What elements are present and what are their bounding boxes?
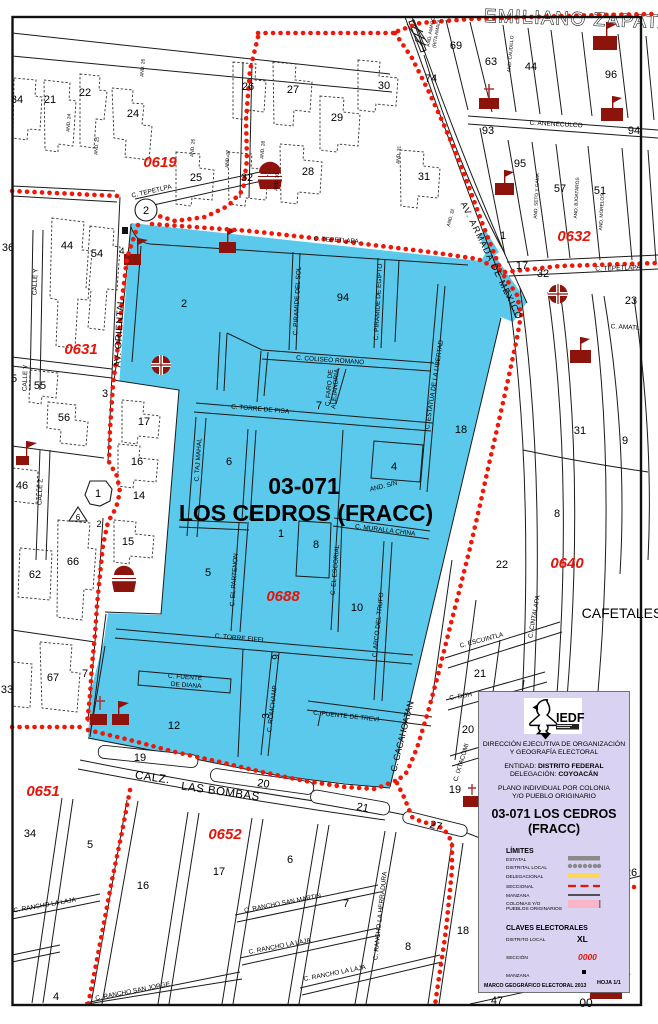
svg-text:44: 44: [525, 61, 537, 73]
svg-text:0640: 0640: [550, 555, 584, 572]
svg-text:46: 46: [16, 480, 28, 492]
svg-text:2: 2: [181, 298, 187, 310]
svg-text:22: 22: [496, 559, 508, 571]
svg-text:0631: 0631: [64, 341, 97, 358]
svg-text:34: 34: [24, 828, 36, 840]
svg-text:Y GEOGRAFÍA ELECTORAL: Y GEOGRAFÍA ELECTORAL: [510, 747, 599, 756]
svg-text:6: 6: [287, 854, 293, 866]
svg-text:44: 44: [61, 240, 73, 252]
svg-text:SECCIÓN: SECCIÓN: [506, 954, 528, 961]
svg-text:51: 51: [594, 185, 606, 197]
svg-text:1: 1: [278, 528, 284, 540]
svg-text:3: 3: [102, 388, 108, 400]
svg-text:57: 57: [554, 183, 566, 195]
svg-text:54: 54: [91, 248, 103, 260]
svg-text:DISTRITAL LOCAL: DISTRITAL LOCAL: [506, 865, 547, 871]
svg-text:6: 6: [226, 456, 232, 468]
svg-text:PLANO INDIVIDUAL POR COLONIA: PLANO INDIVIDUAL POR COLONIA: [498, 785, 610, 792]
svg-text:31: 31: [418, 171, 430, 183]
svg-text:18: 18: [455, 424, 467, 436]
svg-text:16: 16: [137, 880, 149, 892]
svg-text:96: 96: [605, 69, 617, 81]
svg-text:7: 7: [316, 400, 322, 412]
svg-text:7: 7: [343, 898, 349, 910]
svg-text:62: 62: [29, 569, 41, 581]
svg-text:HOJA 1/1: HOJA 1/1: [597, 980, 621, 986]
svg-text:0651: 0651: [26, 783, 59, 800]
svg-text:CLAVES ELECTORALES: CLAVES ELECTORALES: [506, 925, 588, 932]
svg-text:26: 26: [242, 81, 254, 93]
svg-text:94: 94: [628, 125, 640, 137]
svg-text:XL: XL: [577, 934, 588, 944]
svg-text:16: 16: [131, 456, 143, 468]
svg-text:00: 00: [579, 996, 593, 1010]
svg-text:MARCO GEOGRÁFICO ELECTORAL 20: MARCO GEOGRÁFICO ELECTORAL 2013: [484, 982, 587, 989]
svg-text:2: 2: [96, 519, 101, 529]
svg-text:DISTRITO LOCAL: DISTRITO LOCAL: [506, 937, 546, 943]
svg-text:55: 55: [34, 380, 46, 392]
svg-text:23: 23: [625, 295, 637, 307]
svg-text:0000: 0000: [578, 952, 597, 962]
svg-text:22: 22: [79, 87, 91, 99]
svg-text:1: 1: [95, 488, 101, 500]
svg-text:0619: 0619: [143, 154, 177, 171]
svg-text:15: 15: [122, 536, 134, 548]
svg-text:IEDF: IEDF: [556, 711, 585, 725]
svg-text:PUEBLOS ORIGINARIOS: PUEBLOS ORIGINARIOS: [506, 906, 562, 912]
svg-text:CALLE Y: CALLE Y: [22, 364, 30, 392]
svg-text:5: 5: [87, 839, 93, 851]
svg-text:0632: 0632: [557, 228, 591, 245]
svg-text:10: 10: [351, 602, 363, 614]
svg-text:32: 32: [537, 268, 549, 280]
svg-text:63: 63: [485, 56, 497, 68]
svg-text:03-071 LOS CEDROS: 03-071 LOS CEDROS: [491, 807, 616, 821]
svg-text:Y/O PUEBLO ORIGINARIO: Y/O PUEBLO ORIGINARIO: [512, 793, 596, 800]
svg-text:1: 1: [500, 230, 506, 242]
svg-text:17: 17: [213, 866, 225, 878]
svg-text:4: 4: [53, 991, 59, 1003]
svg-text:0688: 0688: [266, 588, 300, 605]
svg-text:DELEGACIÓN: COYOACÁN: DELEGACIÓN: COYOACÁN: [510, 769, 598, 778]
svg-text:93: 93: [482, 125, 494, 137]
svg-text:28: 28: [302, 166, 314, 178]
svg-text:2: 2: [143, 205, 149, 217]
svg-text:9: 9: [271, 654, 282, 660]
svg-text:0652: 0652: [208, 826, 242, 843]
svg-text:17: 17: [138, 416, 150, 428]
svg-text:74: 74: [425, 73, 437, 85]
svg-text:MANZANA: MANZANA: [506, 893, 530, 899]
svg-text:3: 3: [261, 713, 272, 719]
svg-text:MANZANA: MANZANA: [506, 973, 530, 979]
svg-text:24: 24: [127, 108, 139, 120]
svg-text:(FRACC): (FRACC): [528, 822, 580, 836]
svg-text:CALLE Z: CALLE Z: [37, 479, 45, 506]
svg-text:ESTATAL: ESTATAL: [506, 857, 527, 863]
svg-text:21: 21: [355, 801, 369, 815]
svg-text:69: 69: [450, 40, 462, 52]
svg-text:8: 8: [554, 508, 560, 520]
svg-text:94: 94: [337, 292, 349, 304]
svg-text:CAFETALES: CAFETALES: [582, 605, 658, 621]
svg-text:27: 27: [287, 84, 299, 96]
svg-text:21: 21: [44, 94, 56, 106]
svg-text:7: 7: [82, 668, 88, 680]
svg-text:DIRECCIÓN EJECUTIVA DE ORGANIZ: DIRECCIÓN EJECUTIVA DE ORGANIZACIÓN: [483, 739, 625, 748]
svg-text:56: 56: [58, 412, 70, 424]
svg-text:66: 66: [67, 556, 79, 568]
svg-text:6: 6: [76, 513, 81, 522]
svg-text:17: 17: [516, 260, 528, 272]
svg-text:18: 18: [457, 925, 469, 937]
svg-text:8: 8: [405, 941, 411, 953]
svg-text:8: 8: [313, 539, 319, 551]
svg-text:32: 32: [241, 172, 253, 184]
svg-text:LOS CEDROS (FRACC): LOS CEDROS (FRACC): [179, 500, 433, 526]
svg-text:21: 21: [474, 668, 486, 680]
svg-text:29: 29: [331, 112, 343, 124]
svg-text:9: 9: [622, 435, 628, 447]
svg-text:20: 20: [462, 724, 474, 736]
svg-text:DELEGACIONAL: DELEGACIONAL: [506, 874, 544, 880]
svg-text:31: 31: [574, 425, 586, 437]
svg-text:CALLE Y: CALLE Y: [32, 268, 40, 296]
svg-text:ENTIDAD: DISTRITO FEDERAL: ENTIDAD: DISTRITO FEDERAL: [504, 763, 603, 770]
svg-text:25: 25: [190, 172, 202, 184]
svg-text:14: 14: [133, 490, 145, 502]
svg-text:LÍMITES: LÍMITES: [506, 846, 534, 855]
svg-text:20: 20: [257, 777, 271, 791]
svg-text:19: 19: [134, 752, 146, 764]
svg-text:4: 4: [391, 461, 397, 473]
svg-text:5: 5: [205, 567, 211, 579]
svg-text:30: 30: [378, 80, 390, 92]
svg-text:4: 4: [119, 246, 124, 256]
svg-text:03-071: 03-071: [268, 473, 340, 499]
svg-text:67: 67: [47, 672, 59, 684]
svg-text:19: 19: [449, 784, 461, 796]
svg-text:95: 95: [514, 158, 526, 170]
svg-text:SECCIONAL: SECCIONAL: [506, 884, 534, 890]
svg-text:33: 33: [1, 684, 13, 696]
svg-text:12: 12: [168, 720, 180, 732]
